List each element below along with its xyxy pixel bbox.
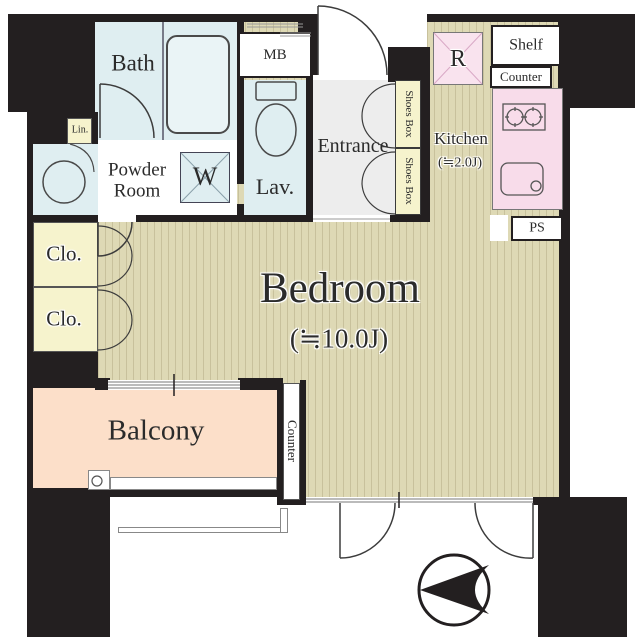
refrigerator-label: R: [450, 47, 466, 73]
closet-1-label: Clo.: [46, 243, 82, 266]
stove-icon: [503, 104, 545, 130]
bedroom-size-label: (≒10.0J): [290, 324, 388, 353]
sink-icon: [501, 163, 543, 195]
balcony-label: Balcony: [108, 415, 205, 446]
kitchen-label: Kitchen: [434, 130, 488, 148]
entrance-door-icon: [318, 6, 387, 75]
powder-room-line2: Room: [108, 181, 166, 202]
north-arrow-icon: [419, 555, 489, 625]
bedroom-door-icon: [98, 222, 132, 256]
lavatory-label: Lav.: [256, 175, 294, 199]
kitchen-size-label: (≒2.0J): [438, 155, 482, 170]
window-bottom-lines: [306, 499, 533, 502]
closet-doors: [98, 226, 132, 350]
pipe-space-label: PS: [529, 220, 545, 235]
meter-box-label: MB: [263, 47, 286, 63]
washer-label: W: [193, 163, 218, 191]
shoes-box-2-label: Shoes Box: [402, 157, 414, 204]
bath-door-icon: [100, 84, 154, 138]
powder-room-label: Powder Room: [108, 160, 166, 201]
bath-label: Bath: [111, 52, 154, 77]
plan-linework: [0, 0, 639, 640]
powder-room-line1: Powder: [108, 160, 166, 181]
bedroom-counter-label: Counter: [285, 420, 299, 462]
meter-box-hatch: [247, 24, 311, 36]
bathtub-icon: [167, 36, 229, 133]
toilet-icon: [256, 82, 296, 156]
floor-plan: Bath MB Lav. Powder Room W Lin. Entrance…: [0, 0, 639, 640]
drain-icon: [92, 476, 102, 486]
entrance-label: Entrance: [317, 136, 388, 158]
linen-door-arc: [70, 144, 94, 172]
bedroom-label: Bedroom: [260, 266, 420, 312]
shoes-box-1-label: Shoes Box: [402, 90, 414, 137]
bottom-swing-doors: [340, 503, 533, 558]
linen-label: Lin.: [72, 126, 88, 137]
closet-2-label: Clo.: [46, 308, 82, 331]
shelf-label: Shelf: [509, 36, 543, 53]
basin-icon: [43, 161, 85, 203]
kitchen-counter-label: Counter: [500, 70, 542, 84]
